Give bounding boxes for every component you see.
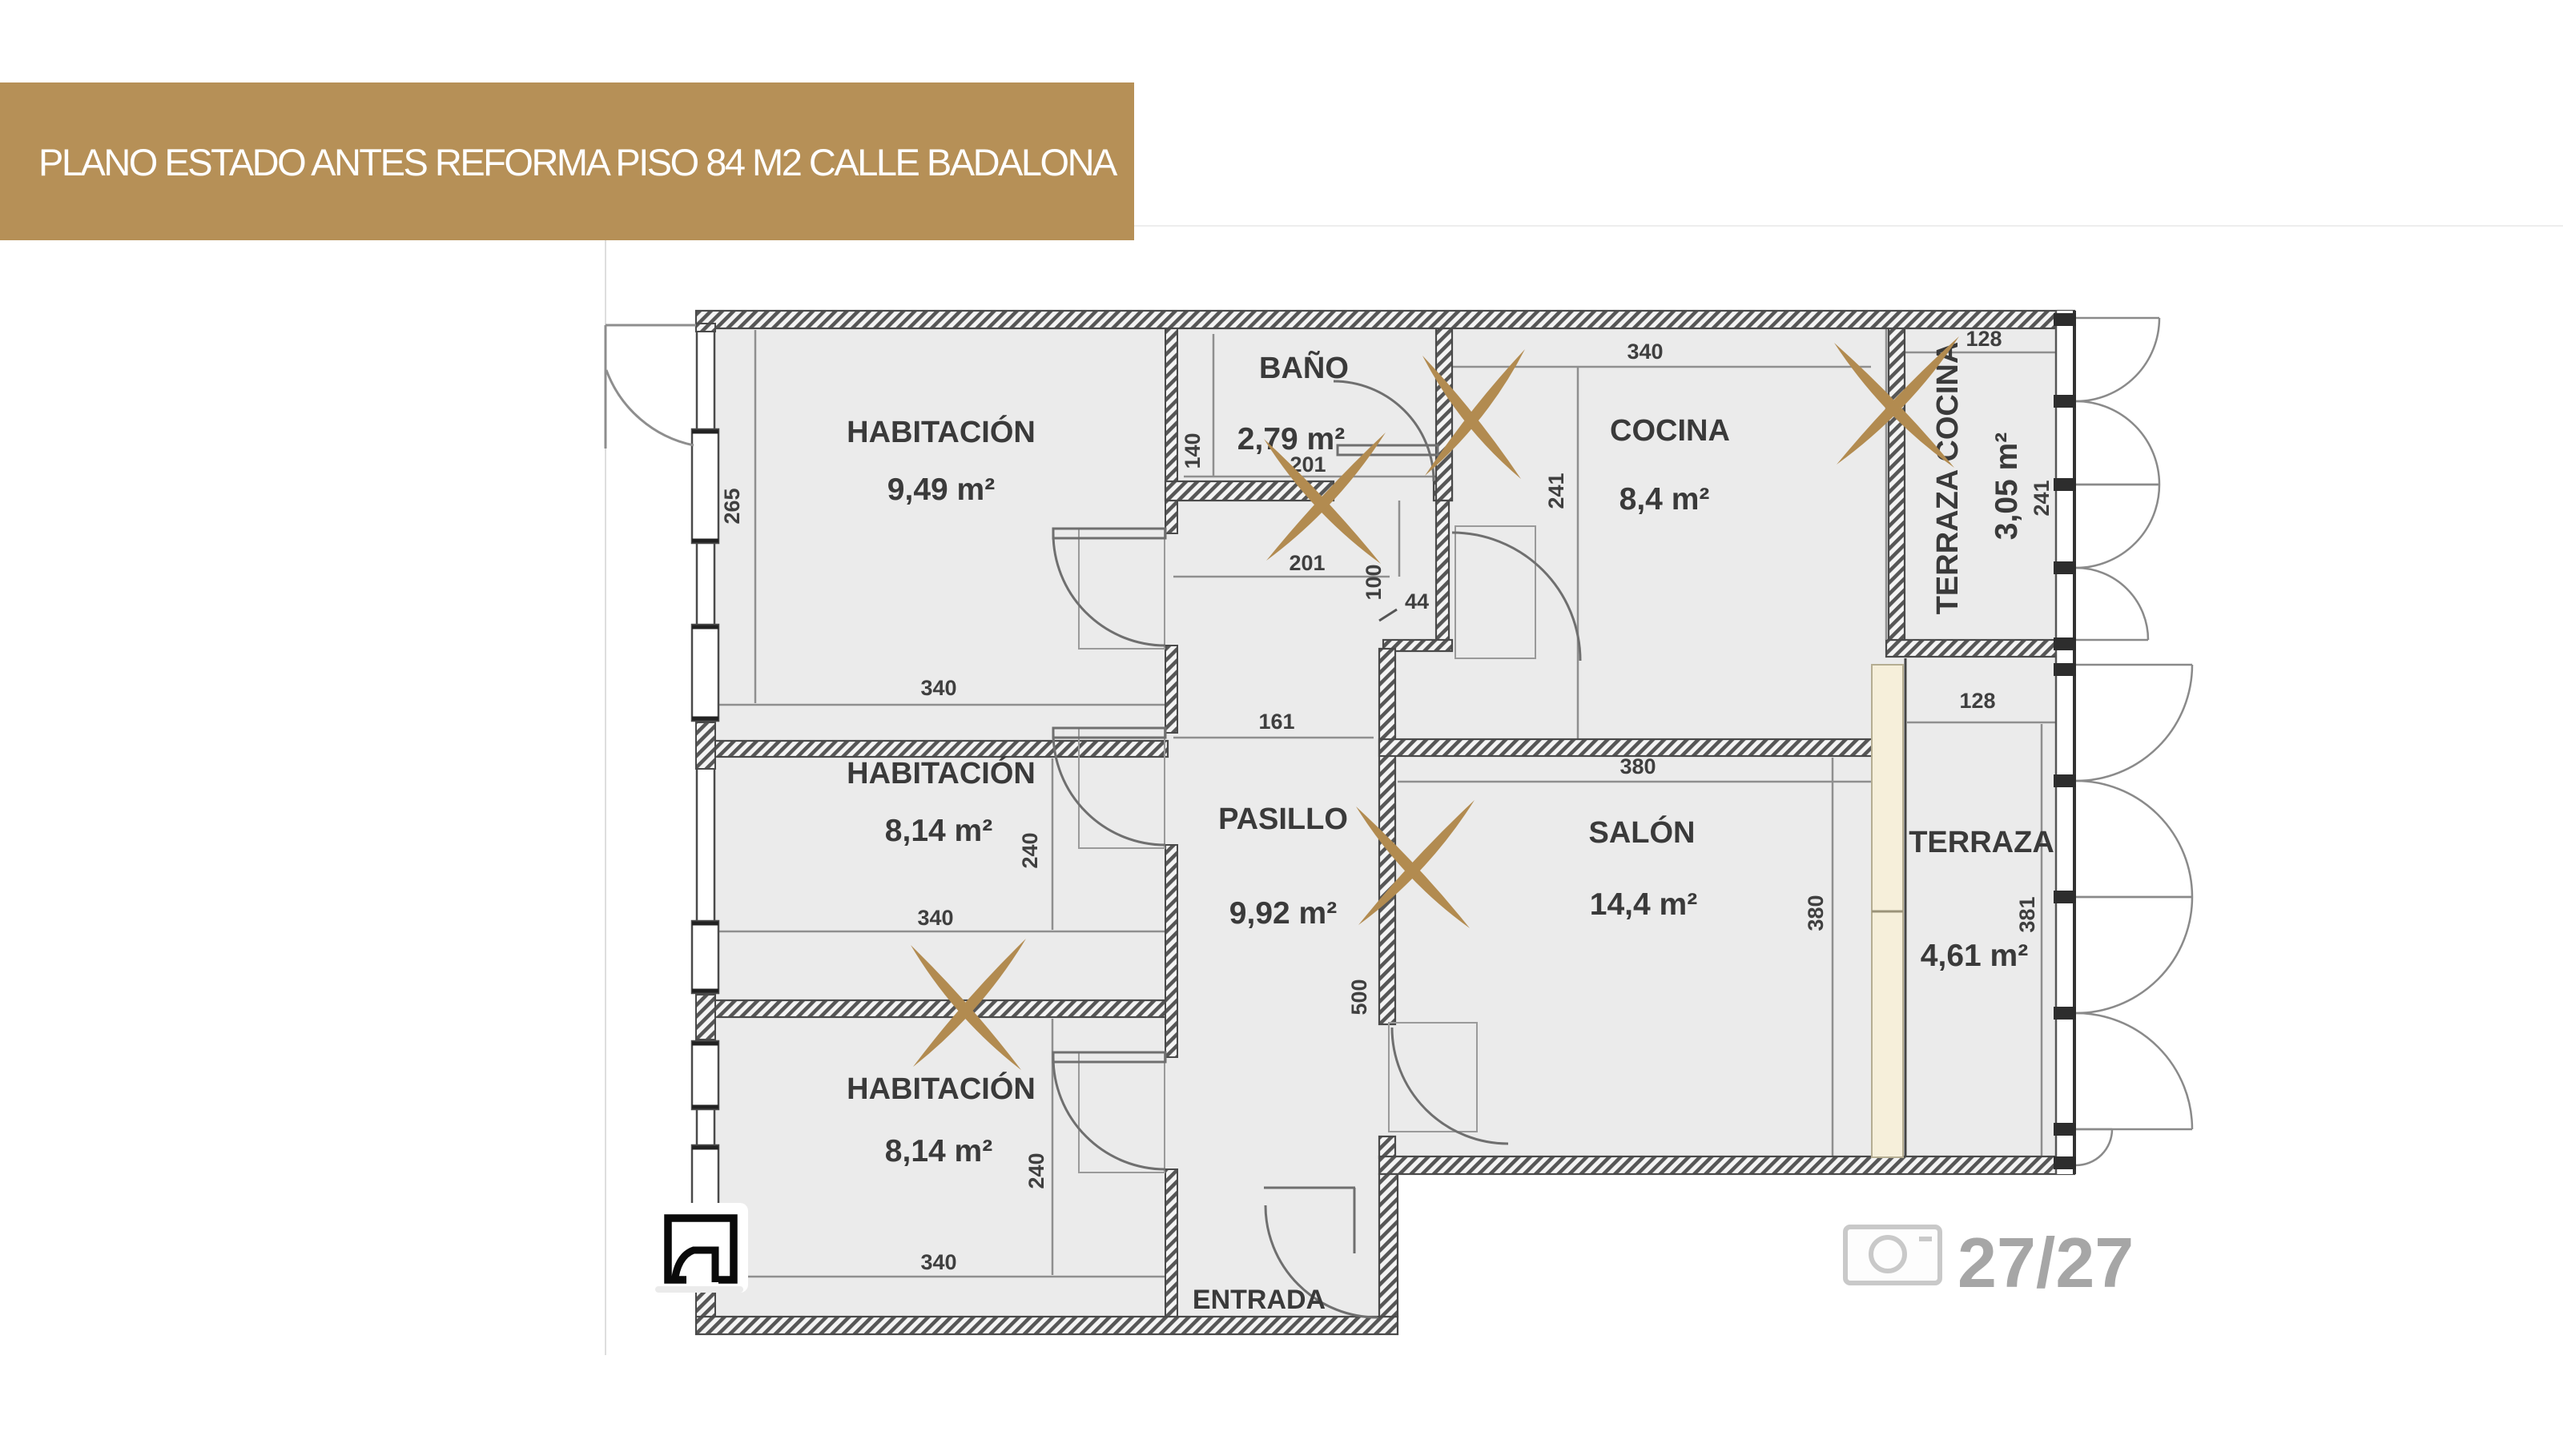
svg-text:44: 44 <box>1405 589 1429 613</box>
svg-text:HABITACIÓN: HABITACIÓN <box>847 1071 1036 1106</box>
svg-text:9,92 m²: 9,92 m² <box>1229 896 1337 931</box>
svg-text:500: 500 <box>1347 979 1371 1015</box>
svg-text:4,61 m²: 4,61 m² <box>1921 939 2028 973</box>
svg-text:HABITACIÓN: HABITACIÓN <box>847 414 1036 449</box>
svg-text:240: 240 <box>1024 1152 1048 1189</box>
svg-text:265: 265 <box>720 488 744 524</box>
svg-text:241: 241 <box>2030 480 2054 516</box>
svg-text:241: 241 <box>1544 473 1568 509</box>
svg-text:SALÓN: SALÓN <box>1589 814 1696 850</box>
svg-text:TERRAZA: TERRAZA <box>1909 826 2054 859</box>
svg-text:BAÑO: BAÑO <box>1259 350 1349 385</box>
svg-text:140: 140 <box>1181 432 1205 469</box>
svg-text:340: 340 <box>920 1250 956 1274</box>
svg-text:240: 240 <box>1018 832 1042 868</box>
svg-text:8,14 m²: 8,14 m² <box>885 1134 992 1168</box>
svg-text:381: 381 <box>2015 896 2039 932</box>
svg-text:161: 161 <box>1258 710 1294 734</box>
svg-text:COCINA: COCINA <box>1610 414 1730 448</box>
svg-text:PASILLO: PASILLO <box>1218 802 1348 836</box>
svg-text:2,79 m²: 2,79 m² <box>1237 422 1345 457</box>
svg-text:340: 340 <box>920 676 956 700</box>
svg-text:14,4 m²: 14,4 m² <box>1590 887 1697 922</box>
svg-text:ENTRADA: ENTRADA <box>1193 1285 1326 1315</box>
svg-text:128: 128 <box>1966 327 2002 351</box>
svg-text:128: 128 <box>1959 689 1995 713</box>
svg-text:TERRAZA COCINA: TERRAZA COCINA <box>1931 342 1965 615</box>
svg-text:PLANO ESTADO ANTES REFORMA PIS: PLANO ESTADO ANTES REFORMA PISO 84 M2 CA… <box>38 141 1118 183</box>
svg-text:100: 100 <box>1362 564 1386 600</box>
svg-text:340: 340 <box>1627 340 1663 364</box>
svg-text:8,4 m²: 8,4 m² <box>1619 482 1710 517</box>
svg-text:3,05 m²: 3,05 m² <box>1990 432 2024 540</box>
svg-text:380: 380 <box>1804 895 1828 931</box>
svg-text:8,14 m²: 8,14 m² <box>885 814 992 848</box>
svg-text:27/27: 27/27 <box>1957 1223 2134 1302</box>
svg-text:380: 380 <box>1619 754 1656 778</box>
svg-text:340: 340 <box>917 906 953 930</box>
svg-text:9,49 m²: 9,49 m² <box>887 473 995 507</box>
svg-text:201: 201 <box>1289 551 1325 575</box>
svg-text:HABITACIÓN: HABITACIÓN <box>847 755 1036 790</box>
